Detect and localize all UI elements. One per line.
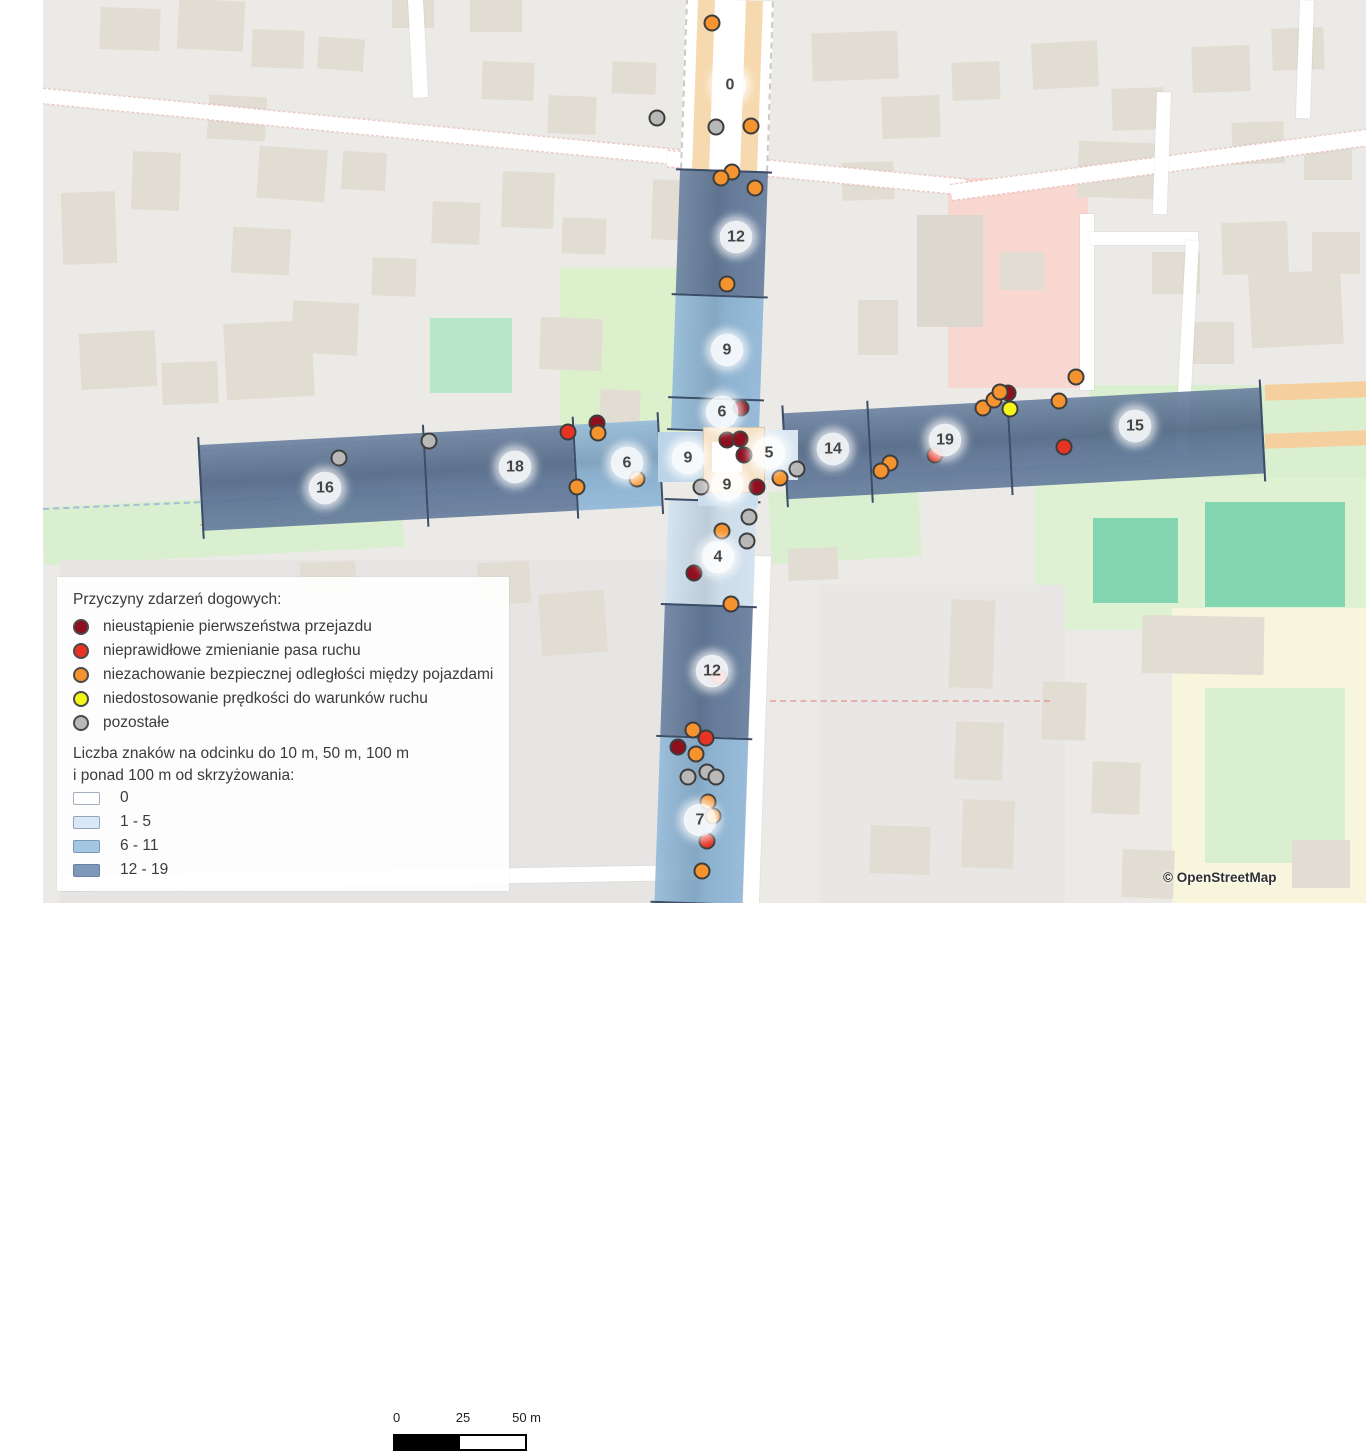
segment-count-badge: 9 xyxy=(711,469,744,502)
segment-count-badge: 5 xyxy=(753,437,786,470)
segment-count-badge: 4 xyxy=(702,541,735,574)
scale-bar-rule xyxy=(393,1434,527,1451)
legend-class-row: 6 - 11 xyxy=(73,839,495,853)
legend-class-swatch xyxy=(73,816,100,829)
scale-bar: 0 25 50 m xyxy=(393,1410,533,1455)
segment-count-badge: 18 xyxy=(499,451,532,484)
legend-cause-label: nieustąpienie pierwszeństwa przejazdu xyxy=(103,618,372,636)
segment-count-badge: 19 xyxy=(929,424,962,457)
segment-count-badge: 9 xyxy=(711,334,744,367)
legend-cause-dot xyxy=(73,619,89,635)
legend-class-row: 12 - 19 xyxy=(73,863,495,877)
legend-cause-label: pozostałe xyxy=(103,714,169,732)
legend-cause-row: nieprawidłowe zmienianie pasa ruchu xyxy=(73,642,495,659)
segment-count-badge: 0 xyxy=(714,69,747,102)
segment-count-badge: 7 xyxy=(684,804,717,837)
left-margin xyxy=(0,0,43,911)
osm-attribution[interactable]: © OpenStreetMap xyxy=(1163,870,1276,885)
legend-cause-dot xyxy=(73,643,89,659)
segment-count-badge: 9 xyxy=(672,442,705,475)
legend-title: Przyczyny zdarzeń dogowych: xyxy=(73,591,495,609)
segment-count-badge: 6 xyxy=(611,447,644,480)
legend-cause-dot xyxy=(73,715,89,731)
legend-cause-label: niedostosowanie prędkości do warunków ru… xyxy=(103,690,428,708)
legend-cause-row: nieustąpienie pierwszeństwa przejazdu xyxy=(73,618,495,635)
legend-class-row: 1 - 5 xyxy=(73,815,495,829)
segment-count-badge: 12 xyxy=(696,655,729,688)
legend-class-label: 6 - 11 xyxy=(120,837,159,855)
legend-class-label: 0 xyxy=(120,789,129,807)
legend-cause-label: niezachowanie bezpiecznej odległości mię… xyxy=(103,666,493,684)
legend-class-swatch xyxy=(73,840,100,853)
legend-class-swatch xyxy=(73,864,100,877)
scale-tick-50: 50 m xyxy=(512,1410,541,1425)
segment-count-badge: 6 xyxy=(706,396,739,429)
legend-cause-label: nieprawidłowe zmienianie pasa ruchu xyxy=(103,642,361,660)
segment-count-badge: 16 xyxy=(309,472,342,505)
legend-class-row: 0 xyxy=(73,791,495,805)
legend-class-label: 12 - 19 xyxy=(120,861,168,879)
segment-count-badge: 14 xyxy=(817,433,850,466)
legend-box: Przyczyny zdarzeń dogowych: nieustąpieni… xyxy=(57,577,509,891)
legend-cause-dot xyxy=(73,691,89,707)
legend-cause-row: niezachowanie bezpiecznej odległości mię… xyxy=(73,666,495,683)
legend-class-label: 1 - 5 xyxy=(120,813,151,831)
legend-cause-row: pozostałe xyxy=(73,714,495,731)
legend-counts-title: Liczba znaków na odcinku do 10 m, 50 m, … xyxy=(73,743,495,787)
segment-count-badge: 15 xyxy=(1119,410,1152,443)
legend-cause-row: niedostosowanie prędkości do warunków ru… xyxy=(73,690,495,707)
map-canvas: 01296959141915161864127 Przyczyny zdarze… xyxy=(0,0,1366,911)
legend-class-swatch xyxy=(73,792,100,805)
scale-tick-0: 0 xyxy=(393,1410,400,1425)
legend-cause-dot xyxy=(73,667,89,683)
scale-tick-25: 25 xyxy=(456,1410,470,1425)
segment-count-badge: 12 xyxy=(720,221,753,254)
bottom-margin xyxy=(0,903,1366,911)
